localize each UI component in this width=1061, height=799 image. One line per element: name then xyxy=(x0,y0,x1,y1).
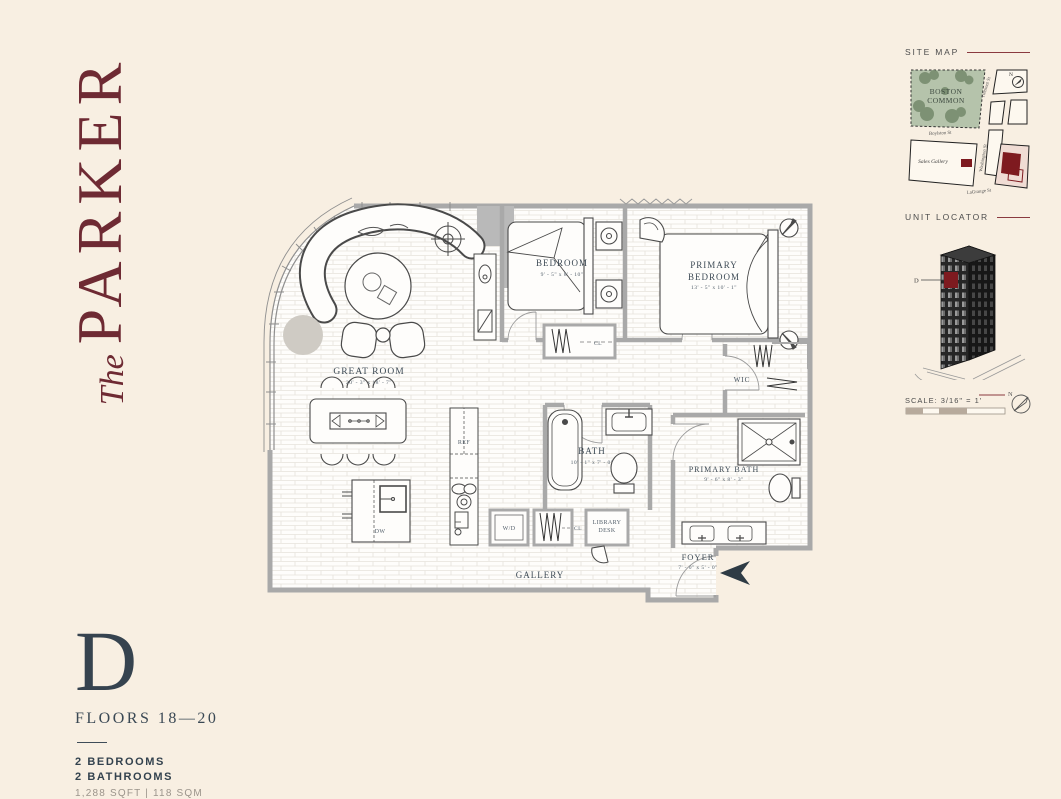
library-desk-label-1: LIBRARY xyxy=(593,520,622,526)
sales-gallery-marker xyxy=(961,159,972,167)
unit-locator-title: UNIT LOCATOR xyxy=(905,212,989,222)
primary-bath-dims: 9' - 6" x 8' - 3" xyxy=(704,477,743,483)
site-map-header: SITE MAP xyxy=(905,47,1030,57)
railing-zigzag xyxy=(620,199,692,204)
scale-bar xyxy=(906,408,1005,414)
scale-compass-icon: N xyxy=(1008,391,1030,413)
gallery-label: GALLERY xyxy=(516,570,565,580)
bath-dims: 10' - 1" x 7' - 0" xyxy=(571,460,614,466)
primary-bath-label: PRIMARY BATH xyxy=(689,465,760,474)
primary-bedroom-label-2: BEDROOM xyxy=(688,272,740,282)
primary-bed xyxy=(640,218,798,349)
unit-d-highlight xyxy=(944,272,958,288)
logo-name: PARKER xyxy=(68,56,132,345)
logo-the: The xyxy=(70,354,130,405)
primary-bedroom-label-1: PRIMARY xyxy=(690,260,738,270)
boston-common-label-2: COMMON xyxy=(927,96,965,105)
boston-common-park: BOSTON COMMON xyxy=(911,70,985,128)
cl-bedroom-label: CL xyxy=(594,341,602,347)
lagrange-st-label: LaGrange St xyxy=(967,188,992,196)
bar-cabinet xyxy=(474,254,496,340)
wic-label: WIC xyxy=(734,376,751,384)
boston-common-label-1: BOSTON xyxy=(930,87,963,96)
unit-locator-rule xyxy=(997,217,1030,218)
building-illustration: D xyxy=(914,246,1025,380)
parker-logo: The PARKER xyxy=(52,38,147,423)
site-map-rule xyxy=(967,52,1030,53)
great-room-dims: 20' - 3" x 18' - 7" xyxy=(346,380,392,386)
entry-arrow-icon xyxy=(720,561,750,585)
parker-building-block xyxy=(995,144,1029,188)
foyer-dims: 7' - 0" x 5' - 0" xyxy=(678,565,717,571)
floor-plan: DW REF BEDROOM 9' - 5" x 8' - 10" CL xyxy=(262,192,817,617)
unit-locator: D xyxy=(905,228,1033,380)
unit-divider xyxy=(77,742,107,743)
bedroom-dims: 9' - 5" x 8' - 10" xyxy=(541,272,584,278)
primary-bedroom-dims: 13' - 5" x 10' - 1" xyxy=(691,285,737,291)
bedroom-label: BEDROOM xyxy=(536,258,588,268)
coffee-table xyxy=(345,253,411,319)
kitchen-counter xyxy=(450,408,478,545)
bedroom-closet xyxy=(544,325,615,358)
side-table xyxy=(283,315,323,355)
unit-floors: FLOORS 18—20 xyxy=(75,710,218,728)
site-map-north-label: N xyxy=(1009,72,1013,78)
site-map: BOSTON COMMON Sales Gallery Boylston St … xyxy=(905,64,1033,200)
unit-info-block: D FLOORS 18—20 2 BEDROOMS 2 BATHROOMS 1,… xyxy=(75,618,218,799)
dw-label: DW xyxy=(375,529,386,535)
cl-hall-label: CL xyxy=(574,526,582,532)
unit-locator-header: UNIT LOCATOR xyxy=(905,212,1030,222)
unit-area: 1,288 SQFT | 118 SQM xyxy=(75,788,218,799)
sales-gallery-label: Sales Gallery xyxy=(918,159,948,165)
scale-graphics: N xyxy=(905,386,1035,422)
wd-label: W/D xyxy=(503,526,516,532)
foyer-label: FOYER xyxy=(682,552,715,562)
bath-label: BATH xyxy=(578,446,606,456)
unit-d-marker: D xyxy=(914,278,919,285)
scale-north-label: N xyxy=(1008,391,1013,398)
unit-bathrooms: 2 BATHROOMS xyxy=(75,770,218,785)
library-desk-label-2: DESK xyxy=(598,528,616,534)
unit-bedrooms: 2 BEDROOMS xyxy=(75,755,218,770)
boylston-st-label: Boylston St xyxy=(929,131,952,137)
ref-label: REF xyxy=(458,440,470,446)
great-room-label: GREAT ROOM xyxy=(333,367,404,377)
brochure-page: { "colors": { "background": "#f8efe2", "… xyxy=(0,0,1061,776)
unit-letter: D xyxy=(75,618,218,704)
site-map-title: SITE MAP xyxy=(905,47,959,57)
hall-closet xyxy=(534,510,572,545)
